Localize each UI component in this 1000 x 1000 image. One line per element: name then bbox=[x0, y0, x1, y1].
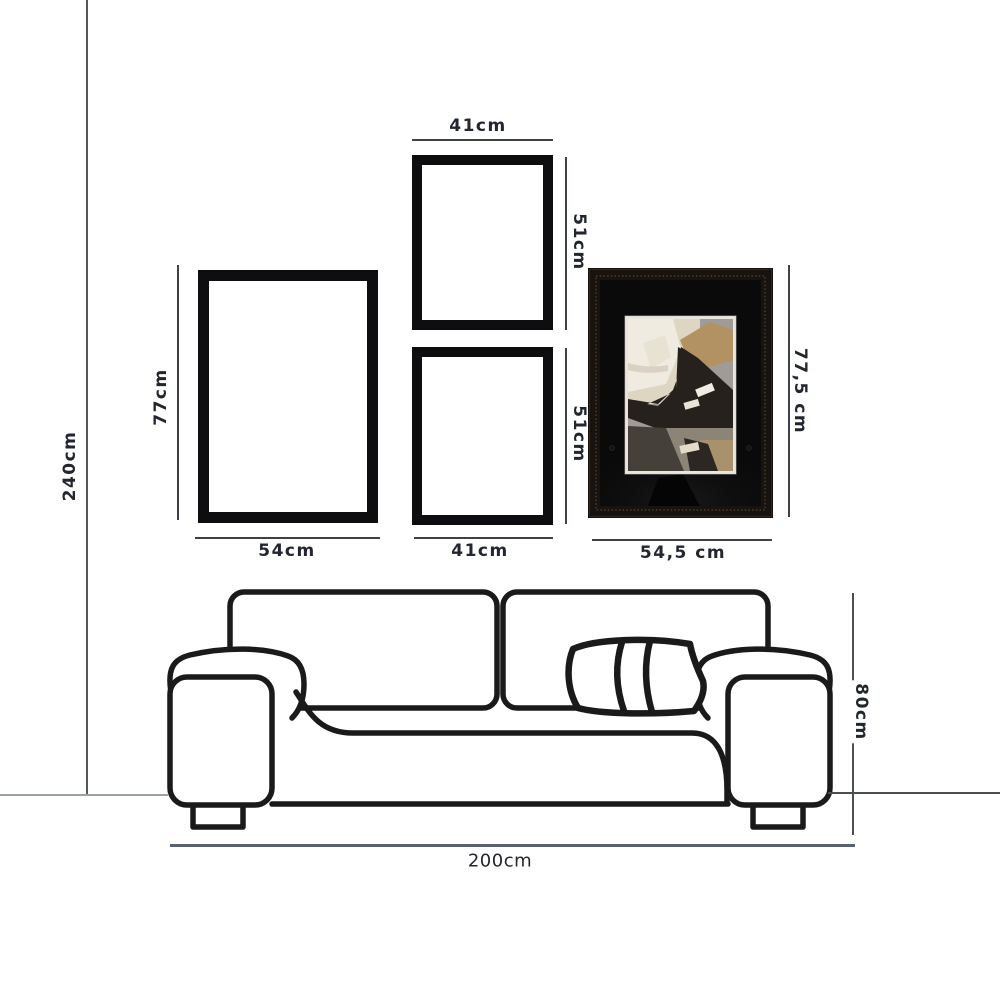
sofa-width-label: 200cm bbox=[468, 851, 532, 872]
dimension-diagram: 240cm 77cm 54cm 41cm 51cm 51cm 41cm bbox=[0, 0, 1000, 1000]
sofa-width-dimension-line bbox=[170, 844, 855, 847]
sofa-height-label: 80cm bbox=[851, 680, 871, 743]
